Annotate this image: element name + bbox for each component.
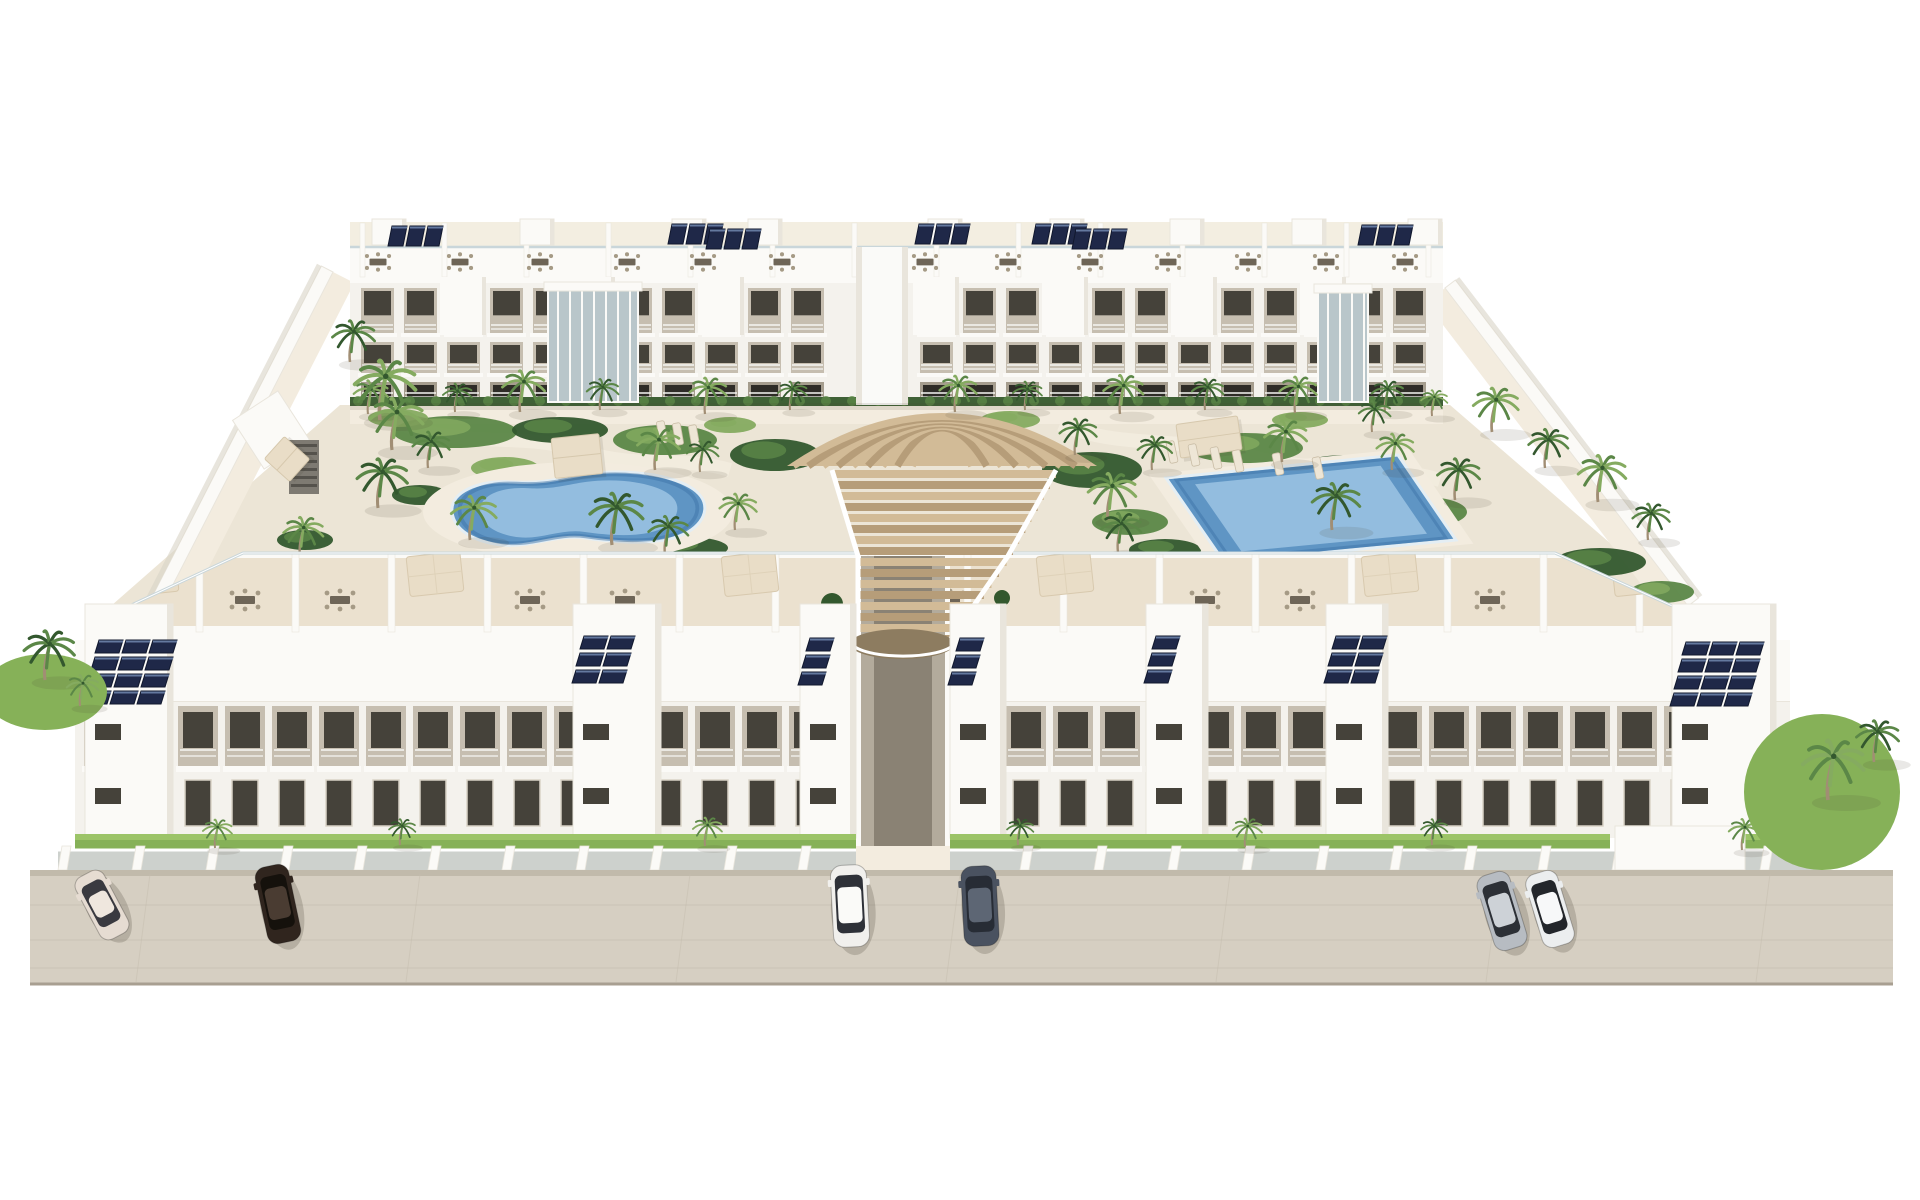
chair <box>610 591 615 596</box>
palm-shadow <box>1017 409 1050 417</box>
tower-window <box>810 788 836 804</box>
palm-crown <box>1831 754 1837 760</box>
window <box>1224 345 1251 363</box>
solar-panel-array <box>706 229 761 249</box>
chair <box>541 605 546 610</box>
chair <box>243 589 248 594</box>
window <box>1095 291 1122 315</box>
window-lower <box>326 780 352 826</box>
window <box>407 291 434 315</box>
window <box>1267 345 1294 363</box>
tower-shade <box>1000 604 1006 838</box>
window <box>1224 291 1251 315</box>
window <box>1293 712 1323 748</box>
roof-bulkhead-shade <box>1438 219 1442 245</box>
chair <box>1155 266 1159 270</box>
floor-slab <box>1089 333 1128 337</box>
floor-slab <box>1004 766 1048 772</box>
garden-bed-highlight <box>399 487 427 498</box>
terrace-divider <box>292 554 299 632</box>
floor-slab <box>1175 373 1214 377</box>
chair <box>515 605 520 610</box>
floor-slab <box>1390 373 1429 377</box>
terrace-divider <box>1252 554 1259 632</box>
floor-slab <box>444 373 483 377</box>
floor-slab <box>270 766 314 772</box>
floor-slab <box>745 333 784 337</box>
window <box>1267 291 1294 315</box>
window-lower <box>1060 780 1086 826</box>
palm-crown <box>472 506 476 510</box>
chair <box>1501 605 1506 610</box>
chair <box>690 254 694 258</box>
chair <box>1298 589 1303 594</box>
table <box>532 259 549 266</box>
palm-shadow <box>1237 846 1270 854</box>
roof-bulkhead-shade <box>550 219 554 245</box>
palm-crown <box>667 525 671 529</box>
window-lower <box>467 780 493 826</box>
chair <box>614 254 618 258</box>
chair <box>1501 591 1506 596</box>
terrace-parasol <box>721 551 779 596</box>
projecting-volume <box>1171 277 1217 335</box>
chair <box>338 589 343 594</box>
table <box>1082 259 1099 266</box>
palm-shadow <box>1425 416 1455 423</box>
chair <box>447 266 451 270</box>
solar-panel-array <box>915 224 970 244</box>
palm-shadow <box>509 409 557 420</box>
chair <box>1311 605 1316 610</box>
floor-slab <box>1003 373 1042 377</box>
roof-bulkhead <box>1408 219 1442 245</box>
palm-shadow <box>1585 499 1639 512</box>
window <box>407 345 434 363</box>
palm-shadow <box>592 409 628 417</box>
chair <box>995 254 999 258</box>
palm-shadow <box>945 410 987 420</box>
chair <box>325 605 330 610</box>
chair <box>376 252 380 256</box>
chair <box>1235 254 1239 258</box>
garage-gate-block <box>1615 826 1745 870</box>
car-roof <box>837 886 863 923</box>
stair-step <box>291 484 317 487</box>
palm-shadow <box>1425 845 1455 852</box>
chair <box>791 254 795 258</box>
palm-crown <box>791 388 794 391</box>
tower-window <box>960 724 986 740</box>
chair <box>1324 252 1328 256</box>
floor-slab <box>693 766 737 772</box>
palm-crown <box>1374 408 1377 411</box>
window-lower <box>1389 780 1415 826</box>
chair <box>912 254 916 258</box>
chair <box>1285 591 1290 596</box>
chair <box>923 268 927 272</box>
window <box>747 712 777 748</box>
window-lower <box>514 780 540 826</box>
palm-shadow <box>782 409 815 417</box>
chair <box>934 254 938 258</box>
stair-tread <box>858 558 1007 566</box>
chair <box>1077 254 1081 258</box>
chair <box>1414 254 1418 258</box>
terrace-divider <box>484 554 491 632</box>
palm-crown <box>1284 430 1288 434</box>
window <box>418 712 448 748</box>
palm-shadow <box>692 471 728 479</box>
table <box>695 259 712 266</box>
tower-window <box>1156 788 1182 804</box>
floor-slab <box>1427 766 1471 772</box>
chair <box>1392 254 1396 258</box>
chair <box>1392 266 1396 270</box>
roof-bulkhead-shade <box>1200 219 1204 245</box>
window <box>364 291 391 315</box>
chair <box>549 266 553 270</box>
window <box>665 385 692 398</box>
palm-crown <box>657 438 661 442</box>
window-lower <box>1295 780 1321 826</box>
palm-crown <box>383 374 389 380</box>
chair <box>527 266 531 270</box>
terrace-parasol <box>1361 551 1419 596</box>
window <box>1105 712 1135 748</box>
terrace-divider <box>388 554 395 632</box>
window <box>1009 291 1036 315</box>
window-lower <box>1624 780 1650 826</box>
pool-water-shallow <box>480 480 677 537</box>
table <box>452 259 469 266</box>
window <box>183 712 213 748</box>
chair <box>469 254 473 258</box>
chair <box>769 254 773 258</box>
building-shadow <box>350 403 1443 410</box>
projecting-volume <box>440 277 486 335</box>
rooftop-terrace-floor <box>350 222 1443 247</box>
palm-crown <box>1334 494 1338 498</box>
tower-window <box>1682 788 1708 804</box>
chair <box>923 252 927 256</box>
floor-slab <box>1051 766 1095 772</box>
chair <box>387 254 391 258</box>
floor-slab <box>788 373 827 377</box>
chair <box>365 266 369 270</box>
tower-window <box>583 724 609 740</box>
stair-tread <box>858 580 991 588</box>
window <box>277 712 307 748</box>
palm-crown <box>456 390 459 393</box>
gap-wall-shade <box>902 247 908 405</box>
terrace-divider <box>360 223 365 277</box>
palm-crown <box>1077 427 1080 430</box>
window <box>230 712 260 748</box>
floor-slab <box>401 333 440 337</box>
gap-wall <box>856 247 908 405</box>
stair-landing-curve <box>850 629 954 659</box>
chair <box>1017 266 1021 270</box>
window <box>1387 712 1417 748</box>
table <box>1318 259 1335 266</box>
floor-slab <box>659 373 698 377</box>
chair <box>469 266 473 270</box>
chair <box>541 591 546 596</box>
chair <box>387 266 391 270</box>
palm-shadow <box>1638 538 1680 548</box>
chair <box>256 605 261 610</box>
stair-bay-canopy <box>1314 284 1372 293</box>
palm-crown <box>702 448 705 451</box>
window <box>751 291 778 315</box>
window <box>1622 712 1652 748</box>
floor-slab <box>1218 333 1257 337</box>
architectural-render <box>0 0 1920 1200</box>
floor-slab <box>1132 373 1171 377</box>
floor-slab <box>458 766 502 772</box>
chair <box>538 268 542 272</box>
chair <box>1166 252 1170 256</box>
chair <box>230 605 235 610</box>
window <box>923 345 950 363</box>
terrace-divider <box>1344 223 1349 277</box>
palm-crown <box>1744 826 1747 829</box>
palm-shadow <box>695 412 737 422</box>
chair <box>243 607 248 612</box>
terrace-divider <box>606 223 611 277</box>
terrace-divider <box>1262 223 1267 277</box>
window-lower <box>1577 780 1603 826</box>
palm-crown <box>1876 730 1880 734</box>
floor-slab <box>745 373 784 377</box>
solar-panel-array <box>1358 225 1413 245</box>
floor-slab <box>1003 333 1042 337</box>
chair <box>256 591 261 596</box>
garden-bed-highlight <box>524 419 572 433</box>
floor-slab <box>1615 766 1659 772</box>
chair <box>1190 591 1195 596</box>
window <box>1246 712 1276 748</box>
window-lower <box>1483 780 1509 826</box>
chair <box>1298 607 1303 612</box>
table <box>917 259 934 266</box>
palm-shadow <box>725 528 767 538</box>
floor-slab <box>1286 766 1330 772</box>
window <box>751 345 778 363</box>
tower-shade <box>1202 604 1208 838</box>
palm-crown <box>1494 398 1498 402</box>
window <box>794 291 821 315</box>
floor-slab <box>487 333 526 337</box>
floor-slab <box>1390 333 1429 337</box>
palm-crown <box>1246 825 1249 828</box>
chair <box>712 266 716 270</box>
palm-shadow <box>72 705 108 713</box>
chair <box>1088 252 1092 256</box>
car-mirror <box>995 879 999 886</box>
palm-shadow <box>1285 411 1327 421</box>
tower-window <box>583 788 609 804</box>
window <box>966 291 993 315</box>
palm-crown <box>1154 444 1157 447</box>
chair <box>1403 268 1407 272</box>
chair <box>351 591 356 596</box>
palm-crown <box>1387 388 1390 391</box>
roof-bulkhead-shade <box>1322 219 1326 245</box>
tower-shade <box>167 604 173 838</box>
chair <box>1246 268 1250 272</box>
street-facade <box>75 702 856 838</box>
roof-bulkhead-shade <box>778 219 782 245</box>
chair <box>690 266 694 270</box>
chair <box>1088 268 1092 272</box>
roof-bulkhead <box>1170 219 1204 245</box>
floor-slab <box>505 766 549 772</box>
projecting-volume-shade <box>740 277 744 335</box>
chair <box>1335 266 1339 270</box>
window <box>751 385 778 398</box>
garden-grass-highlight <box>950 834 1610 840</box>
palm-crown <box>1110 484 1114 488</box>
glazed-stair-bay <box>1318 292 1368 402</box>
floor-slab <box>960 333 999 337</box>
palm-shadow <box>1382 468 1424 478</box>
terrace-divider <box>442 223 447 277</box>
stair-tread <box>839 492 1044 500</box>
stair-tread <box>835 481 1050 489</box>
table <box>1290 596 1310 604</box>
palm-crown <box>1122 384 1126 388</box>
garden-grass-highlight <box>75 834 856 840</box>
chair <box>712 254 716 258</box>
chair <box>636 266 640 270</box>
tower-shade <box>850 604 856 838</box>
chair <box>538 252 542 256</box>
palm-crown <box>1457 468 1461 472</box>
chair <box>701 252 705 256</box>
car-roof <box>968 887 993 922</box>
palm-shadow <box>418 466 460 476</box>
chair <box>528 607 533 612</box>
chair <box>1311 591 1316 596</box>
gap-wall-shade <box>856 247 862 405</box>
chair <box>1285 605 1290 610</box>
window <box>1481 712 1511 748</box>
chair <box>365 254 369 258</box>
window-lower <box>185 780 211 826</box>
roof-bulkhead <box>1292 219 1326 245</box>
chair <box>1177 266 1181 270</box>
table <box>1480 596 1500 604</box>
stair-tread <box>832 470 1056 478</box>
table <box>235 596 255 604</box>
tower-window <box>95 724 121 740</box>
chair <box>780 252 784 256</box>
chair <box>1177 254 1181 258</box>
chair <box>515 591 520 596</box>
chair <box>1414 266 1418 270</box>
chair <box>625 252 629 256</box>
palm-shadow <box>1110 412 1155 423</box>
table <box>774 259 791 266</box>
palm-shadow <box>644 467 692 478</box>
chair <box>1475 605 1480 610</box>
palm-shadow <box>1319 527 1373 540</box>
car-mirror <box>866 878 870 885</box>
car-mirror <box>958 881 962 888</box>
chair <box>1313 266 1317 270</box>
floor-slab <box>1261 333 1300 337</box>
tower-window <box>1682 724 1708 740</box>
chair <box>1257 266 1261 270</box>
window-lower <box>1107 780 1133 826</box>
chair <box>1488 607 1493 612</box>
window <box>1052 385 1079 398</box>
chair <box>1099 254 1103 258</box>
window <box>371 712 401 748</box>
chair <box>351 605 356 610</box>
palm-shadow <box>1065 453 1107 463</box>
stair-tread <box>858 591 984 599</box>
palm-crown <box>707 386 710 389</box>
floor-slab <box>1098 766 1142 772</box>
chair <box>1216 605 1221 610</box>
terrace-parasol <box>406 551 464 596</box>
palm-crown <box>602 386 605 389</box>
palm-crown <box>430 440 433 443</box>
palm-crown <box>47 642 52 647</box>
garden-bed-highlight <box>741 441 786 459</box>
pergola-cabana <box>551 433 606 482</box>
palm-shadow <box>393 845 423 852</box>
floor-slab <box>740 766 784 772</box>
window <box>1396 345 1423 363</box>
palm-shadow <box>1271 459 1319 470</box>
tower-window <box>960 788 986 804</box>
window <box>1138 345 1165 363</box>
terrace-divider <box>676 554 683 632</box>
chair <box>1324 268 1328 272</box>
palm-crown <box>302 526 306 530</box>
chair <box>1203 589 1208 594</box>
chair <box>527 254 531 258</box>
palm-shadow <box>458 537 509 549</box>
stair-tread <box>858 569 999 577</box>
window <box>665 345 692 363</box>
window-lower <box>420 780 446 826</box>
palm-crown <box>82 682 85 685</box>
floor-slab <box>401 373 440 377</box>
floor-slab <box>176 766 220 772</box>
window-lower <box>749 780 775 826</box>
chair <box>528 589 533 594</box>
palm-shadow <box>1444 497 1492 508</box>
palm-crown <box>352 330 356 334</box>
tower-shade <box>655 604 661 838</box>
projecting-volume-shade <box>1084 277 1088 335</box>
table <box>1397 259 1414 266</box>
window <box>1052 345 1079 363</box>
window-lower <box>279 780 305 826</box>
window <box>700 712 730 748</box>
chair <box>623 589 628 594</box>
stair-tread <box>842 503 1038 511</box>
palm-crown <box>1433 825 1435 827</box>
floor-slab <box>1474 766 1518 772</box>
window <box>1138 385 1165 398</box>
window <box>450 345 477 363</box>
